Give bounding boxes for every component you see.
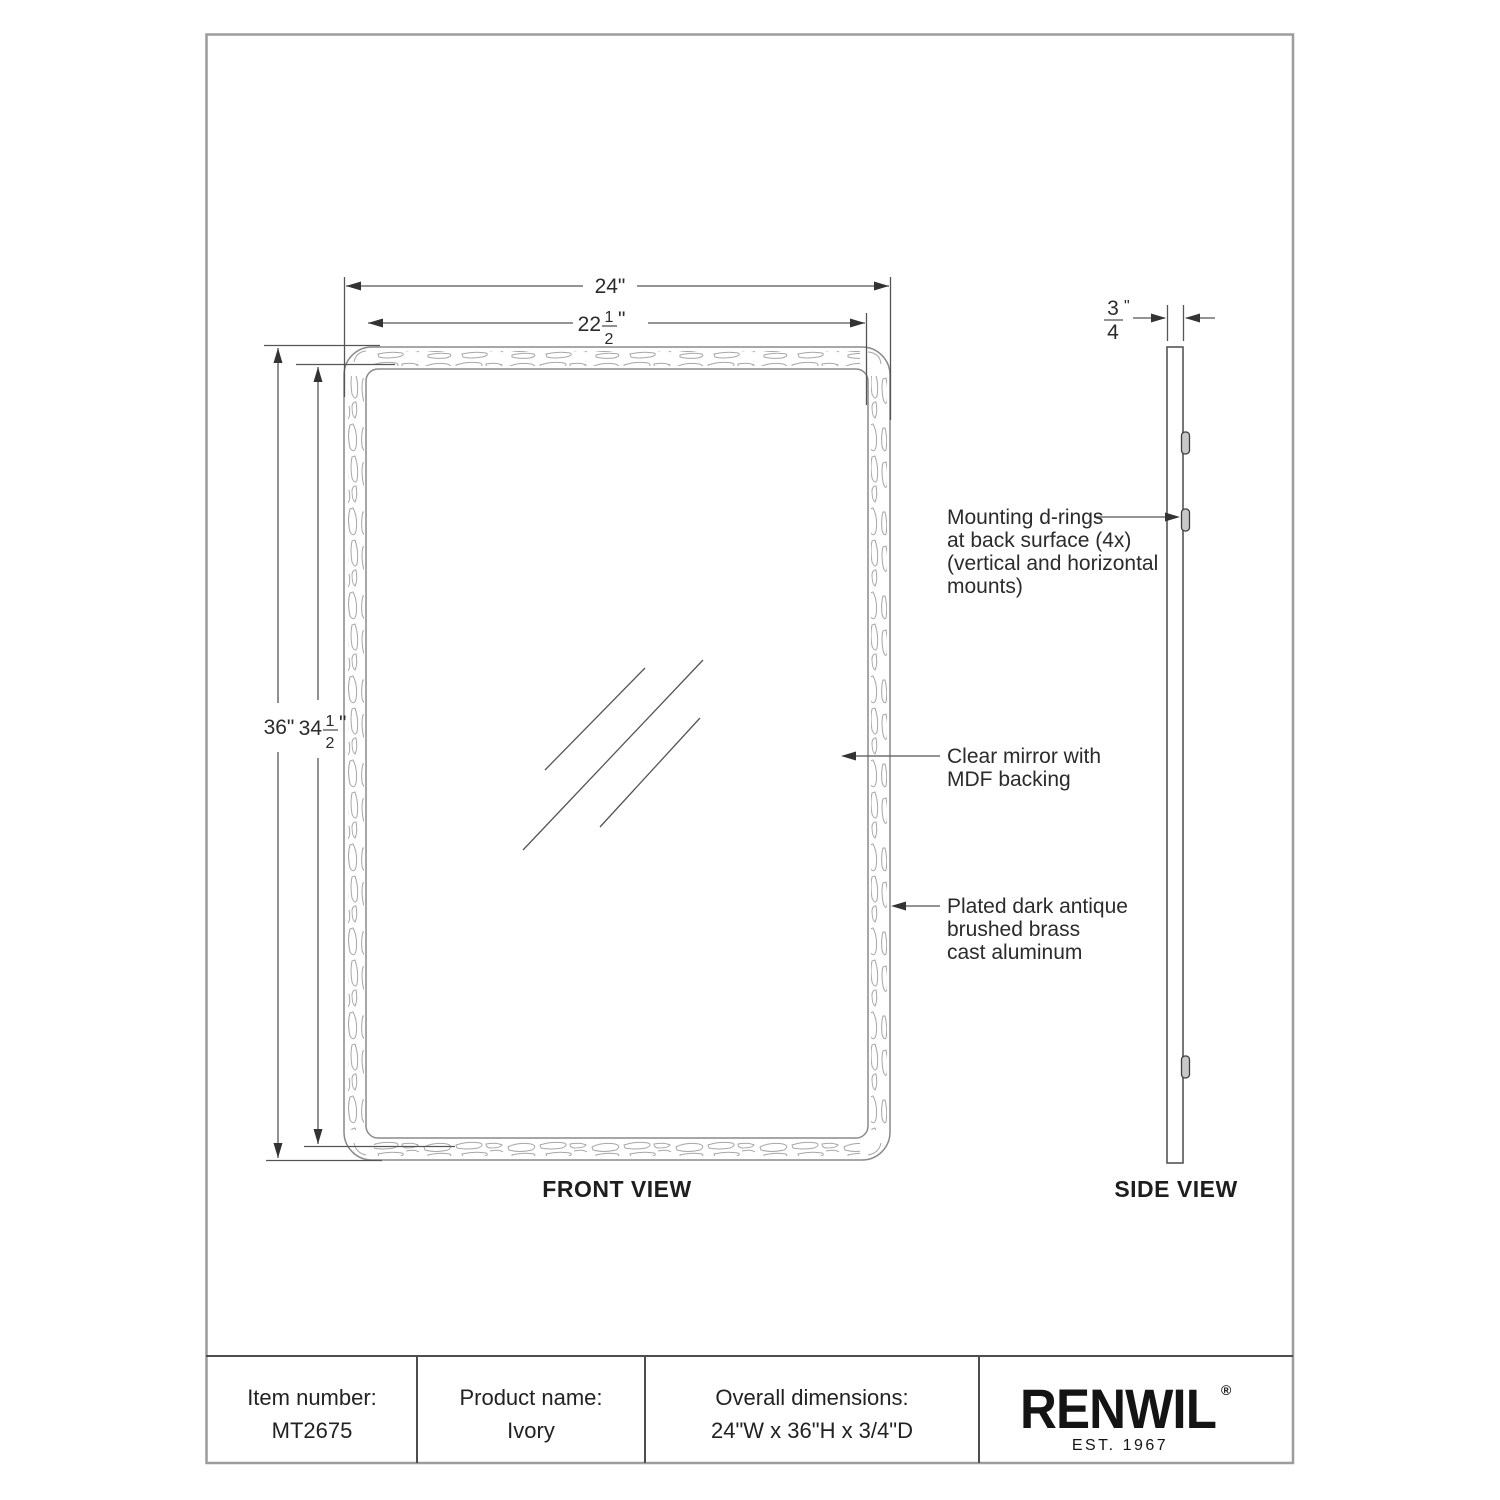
mirror-frame-inner-edge (366, 369, 868, 1138)
dim-width-inner-unit: " (618, 308, 625, 331)
annotation-mirror-line2: MDF backing (947, 768, 1071, 791)
dim-height-inner-unit: " (339, 712, 346, 735)
front-view: 24" 22 1 2 " 36" (264, 275, 891, 1202)
annotation-mounting-line3: (vertical and horizontal (947, 552, 1158, 575)
brand-logo: RENWIL (1020, 1377, 1216, 1440)
annotation-mounting-line2: at back surface (4x) (947, 529, 1131, 552)
dim-height-outer-label: 36" (264, 716, 295, 739)
dim-width-inner-den: 2 (605, 331, 614, 348)
side-panel (1167, 347, 1183, 1163)
dim-width-inner-num: 1 (605, 309, 614, 326)
dim-height-inner-den: 2 (326, 735, 335, 752)
annotation-frame-line1: Plated dark antique (947, 895, 1128, 918)
dim-width-inner-whole: 22 (578, 313, 601, 336)
dim-depth-num: 3 (1107, 297, 1119, 320)
overall-dimensions-label: Overall dimensions: (715, 1385, 908, 1410)
technical-drawing: 24" 22 1 2 " 36" (0, 0, 1500, 1500)
dim-height-inner-num: 1 (326, 713, 335, 730)
annotation-mirror-line1: Clear mirror with (947, 745, 1101, 768)
dim-width-outer-label: 24" (595, 275, 626, 298)
product-name-label: Product name: (459, 1385, 602, 1410)
front-view-label: FRONT VIEW (542, 1176, 691, 1202)
annotation-mounting-line1: Mounting d-rings (947, 506, 1103, 529)
annotation-frame-line2: brushed brass (947, 918, 1080, 941)
spec-sheet: 24" 22 1 2 " 36" (0, 0, 1500, 1500)
item-number-value: MT2675 (272, 1418, 353, 1443)
side-view-label: SIDE VIEW (1114, 1176, 1237, 1202)
brand-established-text: EST. 1967 (1072, 1437, 1168, 1454)
product-name-value: Ivory (507, 1418, 555, 1443)
dim-depth-unit: " (1124, 298, 1130, 315)
dim-height-inner-whole: 34 (299, 717, 323, 740)
annotation-frame-line3: cast aluminum (947, 941, 1082, 964)
dim-depth-den: 4 (1107, 321, 1119, 344)
brand-registered-mark: ® (1221, 1382, 1232, 1398)
overall-dimensions-value: 24"W x 36"H x 3/4"D (711, 1418, 913, 1443)
item-number-label: Item number: (247, 1385, 377, 1410)
annotation-mounting-line4: mounts) (947, 575, 1023, 598)
